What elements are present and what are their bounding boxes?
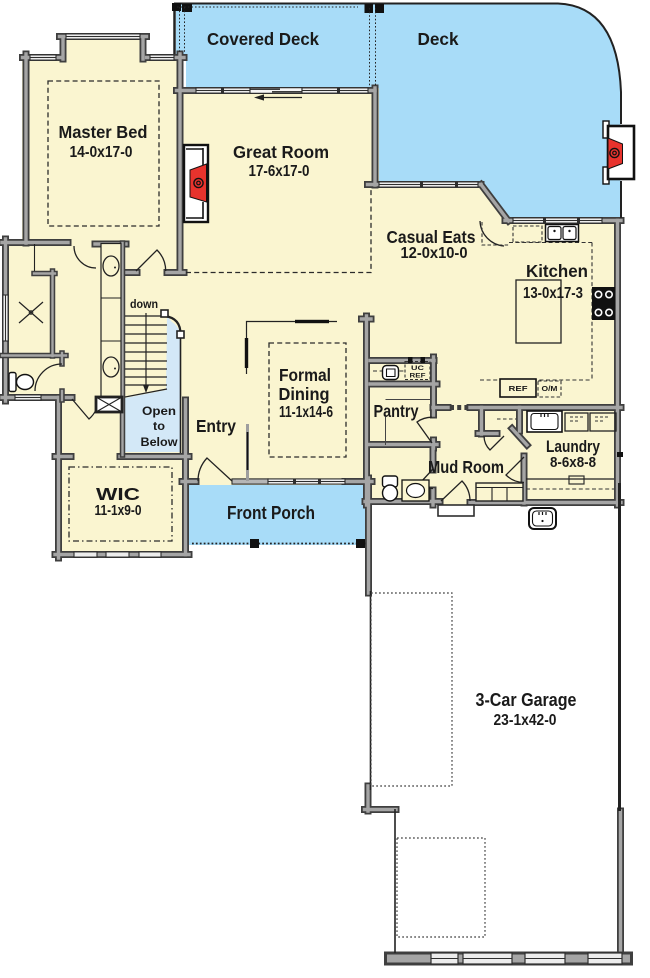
svg-text:Entry: Entry [196, 416, 236, 436]
svg-text:12-0x10-0: 12-0x10-0 [401, 245, 468, 262]
svg-text:Kitchen: Kitchen [526, 261, 588, 281]
svg-text:REF: REF [509, 386, 529, 393]
svg-text:Pantry: Pantry [374, 401, 419, 421]
svg-text:23-1x42-0: 23-1x42-0 [494, 712, 557, 729]
svg-text:11-1x14-6: 11-1x14-6 [279, 404, 333, 421]
svg-text:3-Car Garage: 3-Car Garage [476, 689, 577, 710]
svg-text:O/M: O/M [542, 386, 558, 393]
svg-text:Mud Room: Mud Room [428, 457, 504, 477]
svg-text:11-1x9-0: 11-1x9-0 [95, 503, 142, 519]
svg-text:Laundry: Laundry [546, 438, 601, 456]
svg-text:down: down [130, 297, 158, 311]
svg-text:Great Room: Great Room [233, 142, 329, 162]
svg-text:13-0x17-3: 13-0x17-3 [523, 285, 583, 302]
svg-text:Casual Eats: Casual Eats [387, 227, 476, 247]
svg-text:to: to [153, 419, 165, 433]
svg-text:8-6x8-8: 8-6x8-8 [550, 455, 596, 471]
svg-text:Formal: Formal [279, 365, 331, 385]
svg-text:Open: Open [142, 404, 176, 418]
svg-text:Covered Deck: Covered Deck [207, 29, 319, 49]
svg-text:UC: UC [411, 365, 424, 372]
svg-text:WIC: WIC [96, 484, 140, 504]
svg-text:17-6x17-0: 17-6x17-0 [249, 163, 310, 180]
svg-text:Below: Below [141, 435, 179, 449]
svg-text:Master Bed: Master Bed [59, 122, 148, 142]
svg-text:REF: REF [410, 373, 426, 380]
svg-text:14-0x17-0: 14-0x17-0 [70, 144, 133, 161]
svg-text:Dining: Dining [279, 384, 330, 404]
svg-text:Front Porch: Front Porch [227, 502, 315, 523]
svg-text:Deck: Deck [418, 29, 459, 49]
